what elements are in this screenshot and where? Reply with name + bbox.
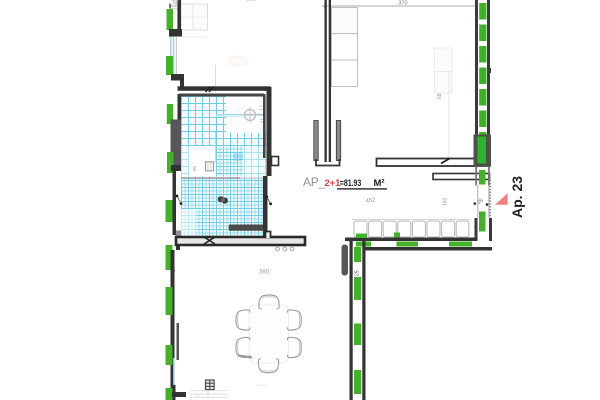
svg-text:25: 25 — [355, 270, 361, 276]
svg-text:370: 370 — [398, 1, 407, 7]
svg-text:160: 160 — [443, 197, 449, 206]
svg-text:68: 68 — [437, 93, 443, 99]
svg-text:380: 380 — [259, 270, 270, 276]
svg-text:2+1: 2+1 — [325, 178, 342, 189]
svg-text:=81.93: =81.93 — [340, 178, 362, 189]
svg-text:70: 70 — [172, 1, 178, 7]
svg-text:AP_: AP_ — [303, 175, 326, 189]
svg-text:Ap. 23: Ap. 23 — [509, 176, 525, 218]
svg-text:50: 50 — [192, 165, 197, 171]
svg-text:M²: M² — [374, 178, 385, 189]
